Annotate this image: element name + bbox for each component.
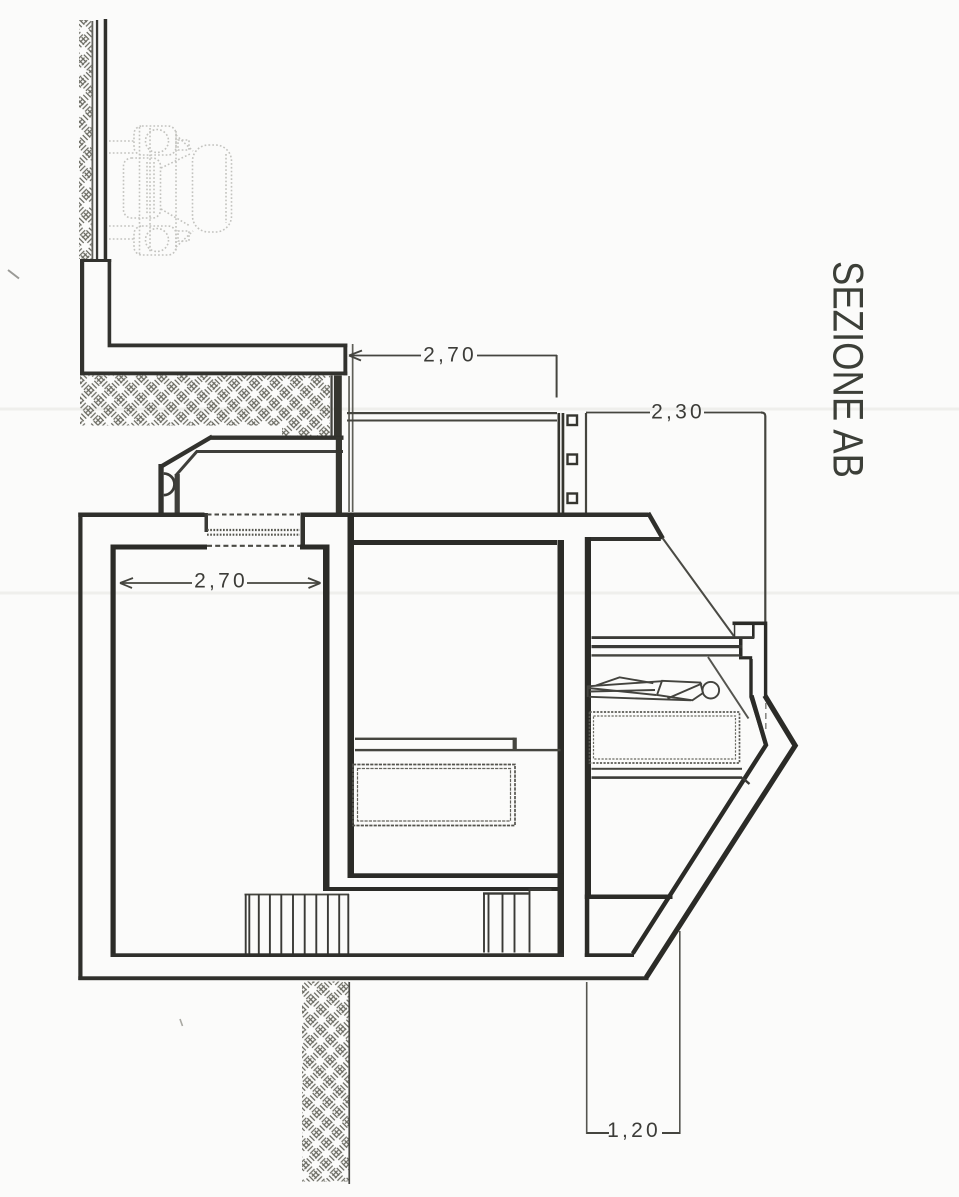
svg-text:1,20: 1,20 [607, 1119, 661, 1142]
svg-text:SEZIONE AB: SEZIONE AB [824, 261, 872, 478]
svg-text:2,70: 2,70 [194, 570, 248, 593]
svg-text:2,70: 2,70 [423, 344, 477, 367]
svg-text:2,30: 2,30 [651, 401, 705, 424]
